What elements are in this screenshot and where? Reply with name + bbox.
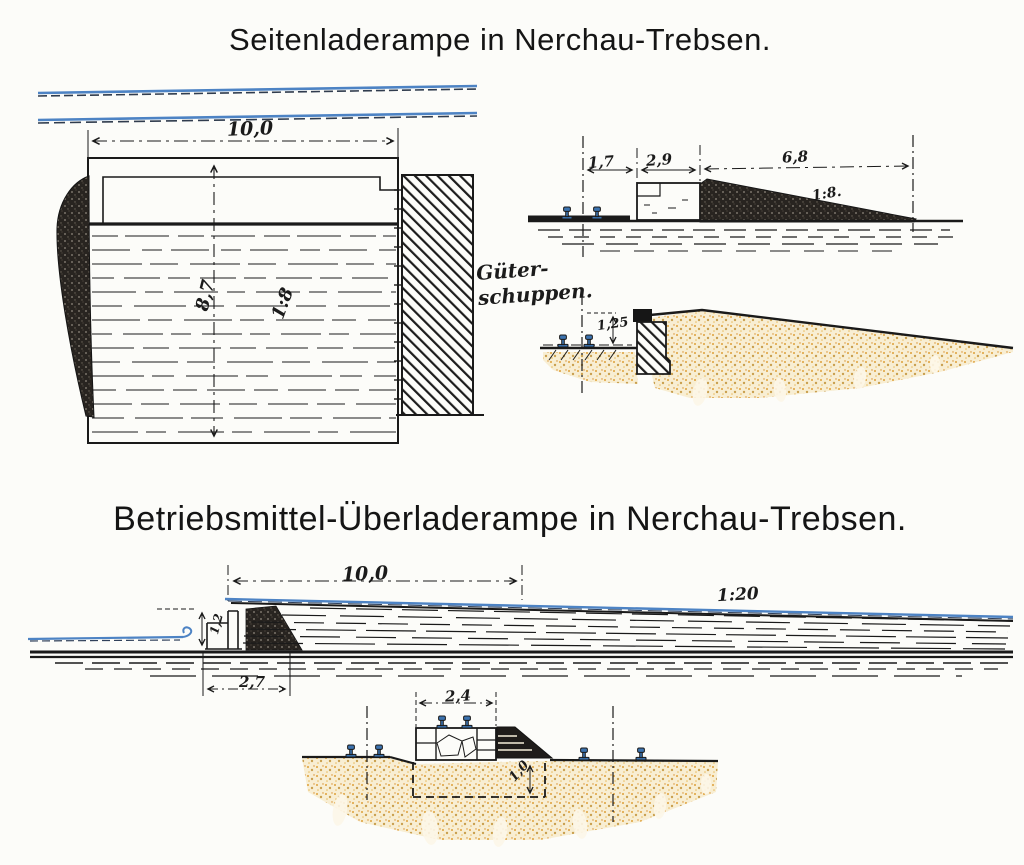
title-betriebsmittel-ueberladerampe: Betriebsmittel-Überladerampe in Nerchau-…: [50, 500, 970, 539]
lower-cross-section: [540, 293, 1013, 407]
rail-icon: [462, 716, 472, 728]
title-seitenladerampe: Seitenladerampe in Nerchau-Trebsen.: [120, 22, 880, 58]
diagram-canvas: [0, 0, 1024, 865]
rail-icon: [346, 745, 356, 757]
scanned-drawing-page: Seitenladerampe in Nerchau-Trebsen. 10,0…: [0, 0, 1024, 865]
rail-icon: [636, 748, 646, 760]
goods-shed-label: Güter- schuppen.: [475, 253, 593, 311]
upper-section-dim-right: 6,8: [782, 147, 809, 166]
rail-icon: [579, 748, 589, 760]
rail-icon: [562, 207, 572, 219]
upper-section-dim-left: 1,7: [587, 152, 614, 172]
rail-icon: [558, 335, 568, 347]
rail-icon: [592, 207, 602, 219]
long-section-slope-label: 1:20: [717, 584, 760, 606]
cross-section-width-dimension: 2,4: [428, 685, 489, 706]
long-section-wall-width-dimension: 2,7: [222, 673, 282, 691]
rail-icon: [584, 335, 594, 347]
long-section: [28, 565, 1013, 696]
rail-icon: [374, 745, 384, 757]
upper-section-dim-middle: 2,9: [645, 150, 672, 170]
long-section-width-dimension: 10,0: [325, 562, 406, 587]
rail-icon: [437, 716, 447, 728]
plan-width-dimension: 10,0: [210, 117, 291, 142]
